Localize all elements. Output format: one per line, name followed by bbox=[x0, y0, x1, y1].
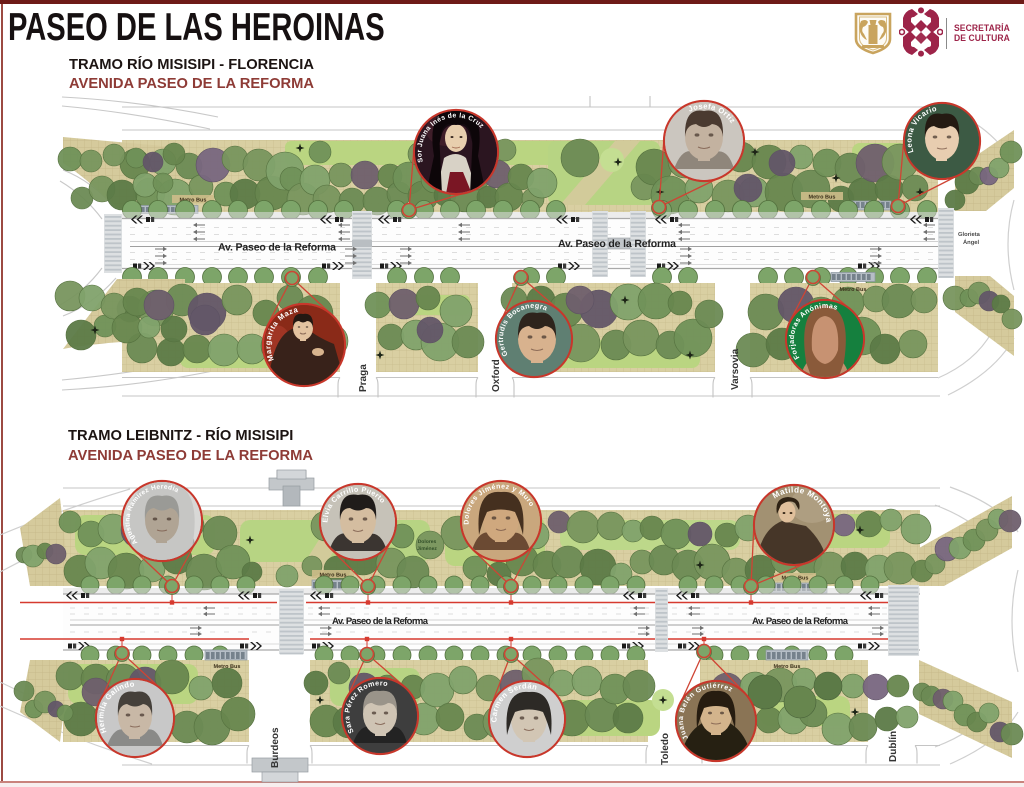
svg-text:Oxford: Oxford bbox=[491, 359, 502, 392]
svg-text:Dublín: Dublín bbox=[888, 731, 899, 762]
svg-text:Metro Bus: Metro Bus bbox=[774, 664, 801, 670]
svg-text:Metro Bus: Metro Bus bbox=[214, 664, 241, 670]
svg-text:Av. Paseo de la Reforma: Av. Paseo de la Reforma bbox=[558, 238, 676, 250]
svg-text:Dolores: Dolores bbox=[418, 539, 437, 545]
svg-text:Ángel: Ángel bbox=[963, 238, 979, 246]
svg-text:Praga: Praga bbox=[358, 364, 369, 392]
svg-text:Metro Bus: Metro Bus bbox=[840, 287, 867, 293]
svg-text:Burdeos: Burdeos bbox=[270, 727, 281, 768]
svg-text:Toledo: Toledo bbox=[660, 733, 671, 765]
svg-text:Av. Paseo de la Reforma: Av. Paseo de la Reforma bbox=[332, 616, 429, 627]
svg-text:Av. Paseo de la Reforma: Av. Paseo de la Reforma bbox=[752, 616, 849, 627]
svg-text:Metro Bus: Metro Bus bbox=[809, 195, 836, 201]
svg-text:Glorieta: Glorieta bbox=[958, 231, 981, 238]
svg-text:Av. Paseo de la Reforma: Av. Paseo de la Reforma bbox=[218, 242, 336, 254]
svg-text:Varsovia: Varsovia bbox=[730, 348, 741, 390]
svg-text:Jiménez: Jiménez bbox=[417, 546, 437, 552]
